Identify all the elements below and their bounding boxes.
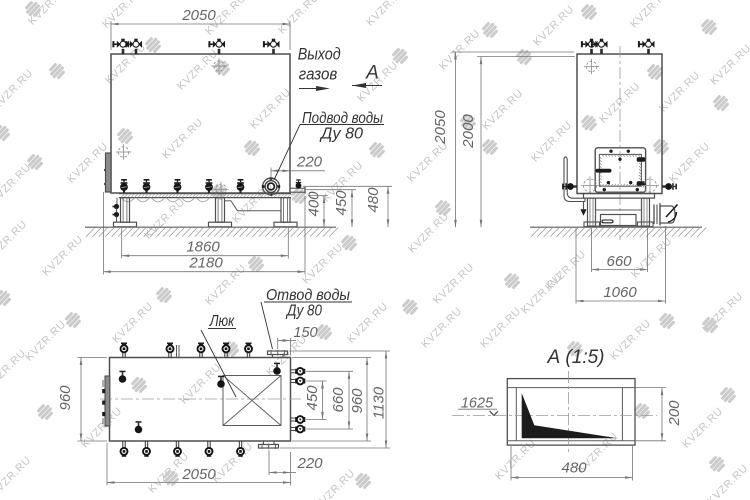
svg-text:960: 960 [57, 385, 74, 411]
svg-text:А: А [365, 63, 379, 84]
svg-text:Ду 80: Ду 80 [319, 126, 363, 143]
svg-text:450: 450 [333, 190, 350, 216]
svg-text:газов: газов [299, 65, 338, 83]
svg-text:400: 400 [306, 191, 323, 217]
svg-text:660: 660 [330, 387, 347, 413]
svg-text:Выход: Выход [298, 46, 341, 64]
svg-text:1060: 1060 [603, 284, 637, 301]
svg-text:2050: 2050 [181, 7, 216, 24]
svg-text:480: 480 [561, 460, 587, 477]
svg-text:960: 960 [349, 388, 366, 414]
svg-text:220: 220 [296, 455, 323, 472]
svg-text:220: 220 [296, 154, 323, 171]
svg-text:2050: 2050 [432, 110, 449, 145]
svg-text:А (1:5): А (1:5) [546, 347, 604, 368]
svg-text:480: 480 [365, 187, 382, 213]
svg-text:450: 450 [304, 385, 321, 411]
svg-text:Люк: Люк [209, 313, 235, 330]
svg-text:Отвод воды: Отвод воды [266, 287, 351, 304]
svg-text:2180: 2180 [188, 255, 223, 272]
svg-text:660: 660 [606, 253, 632, 270]
svg-text:200: 200 [666, 400, 683, 427]
svg-text:Ду 80: Ду 80 [285, 303, 322, 320]
svg-text:150: 150 [293, 325, 317, 341]
svg-text:2050: 2050 [181, 466, 216, 483]
svg-text:1130: 1130 [371, 386, 388, 419]
svg-text:2000: 2000 [460, 114, 477, 149]
svg-text:1860: 1860 [186, 239, 220, 256]
